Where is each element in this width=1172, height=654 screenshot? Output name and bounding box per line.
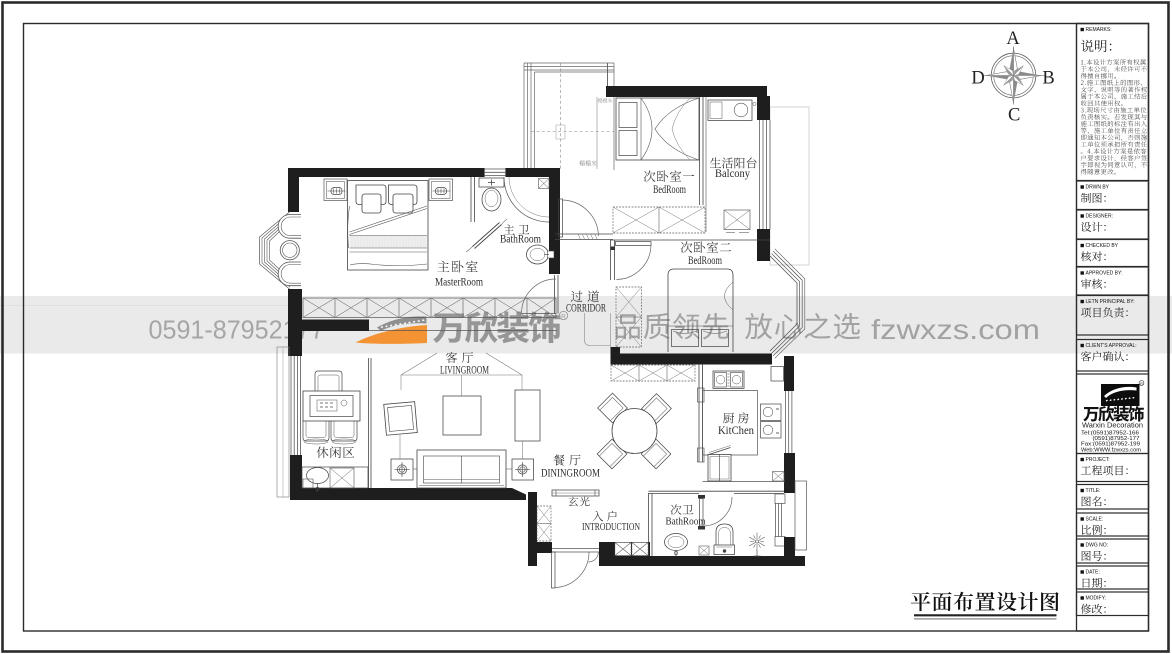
svg-text:LIVINGROOM: LIVINGROOM <box>440 365 489 377</box>
svg-text:CORRIDOR: CORRIDOR <box>566 303 606 315</box>
svg-text:fzwxzs.com: fzwxzs.com <box>871 314 1040 345</box>
svg-text:LETN PRINCIPAL BY:: LETN PRINCIPAL BY: <box>1086 299 1135 305</box>
svg-text:C: C <box>1008 106 1020 126</box>
svg-text:R: R <box>1140 382 1143 386</box>
svg-text:BathRoom: BathRoom <box>666 516 706 528</box>
svg-text:DRWN BY: DRWN BY <box>1086 185 1110 191</box>
svg-text:DININGROOM: DININGROOM <box>541 468 600 480</box>
svg-text:REMARKS:: REMARKS: <box>1086 27 1112 33</box>
svg-text:DWG NO:: DWG NO: <box>1086 543 1109 549</box>
svg-text:D: D <box>971 69 984 89</box>
svg-text:CHECKED BY: CHECKED BY <box>1086 243 1119 249</box>
svg-text:PROJECT:: PROJECT: <box>1086 457 1110 463</box>
svg-text:TITLE:: TITLE: <box>1086 488 1101 494</box>
svg-text:KitChen: KitChen <box>718 425 754 437</box>
svg-text:APPROVED BY:: APPROVED BY: <box>1086 271 1123 277</box>
svg-text:DESIGNER:: DESIGNER: <box>1086 214 1114 220</box>
svg-text:MasterRoom: MasterRoom <box>435 275 484 289</box>
svg-text:Warxin Decoration: Warxin Decoration <box>1082 423 1143 430</box>
svg-text:BedRoom: BedRoom <box>653 184 686 196</box>
svg-text:CLIENT'S APPROVAL:: CLIENT'S APPROVAL: <box>1086 343 1137 349</box>
svg-text:BathRoom: BathRoom <box>500 234 541 246</box>
svg-text:Balcony: Balcony <box>715 168 750 180</box>
svg-text:Web:WWW.fzwxzs.com: Web:WWW.fzwxzs.com <box>1081 447 1141 453</box>
svg-text:A: A <box>1006 29 1020 49</box>
svg-text:R: R <box>561 314 566 321</box>
svg-text:BedRoom: BedRoom <box>688 255 722 267</box>
svg-text:DATE:: DATE: <box>1086 570 1100 576</box>
svg-text:MODIFY:: MODIFY: <box>1086 596 1107 602</box>
svg-text:INTRODUCTION: INTRODUCTION <box>582 521 640 533</box>
svg-text:SCALE:: SCALE: <box>1086 517 1104 523</box>
svg-text:B: B <box>1042 69 1054 89</box>
